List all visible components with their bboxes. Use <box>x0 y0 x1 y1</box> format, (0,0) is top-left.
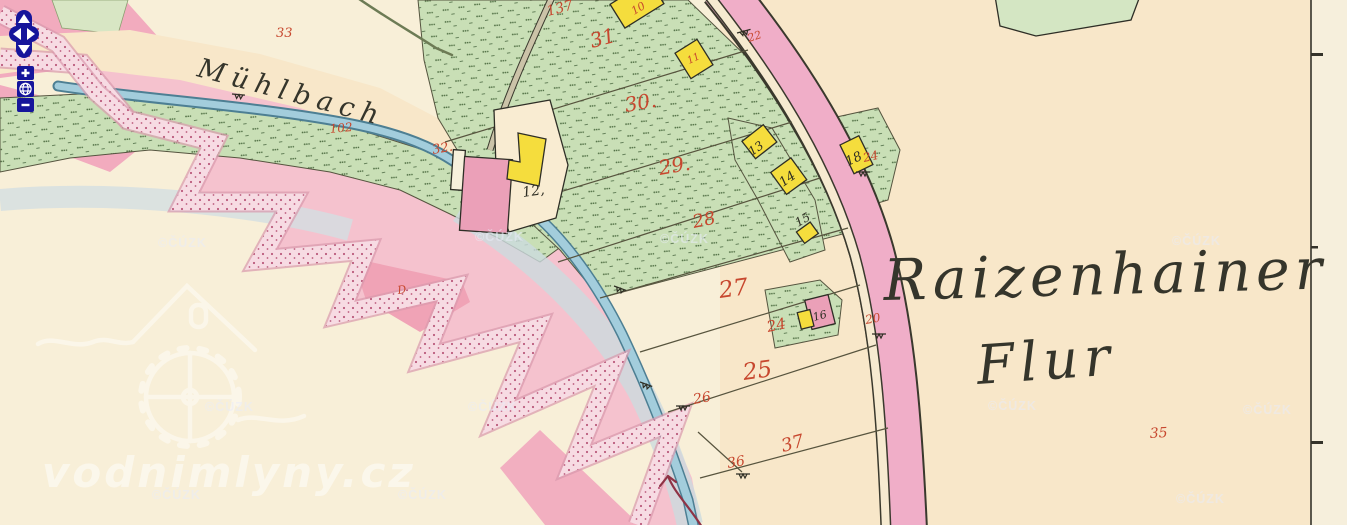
parcel-number-27: 27 <box>716 274 750 304</box>
parcel-number-33: 33 <box>276 26 293 41</box>
map-viewport[interactable]: Mühlbach Raizenhainer Flur 331373130.29.… <box>0 0 1347 525</box>
copyright-watermark: ©ČÚZK <box>1176 491 1225 506</box>
copyright-watermark: ©ČÚZK <box>660 231 709 246</box>
copyright-watermark: ©ČÚZK <box>475 229 524 244</box>
parcel-number-102: 102 <box>329 120 353 136</box>
watermark-site-text: vodnimlyny.cz <box>42 448 416 497</box>
copyright-watermark: ©ČÚZK <box>158 235 207 250</box>
territory-name-line1: Raizenhainer <box>882 236 1328 314</box>
building-12-masonry <box>459 156 512 233</box>
parcel-number-25: 25 <box>740 356 774 386</box>
copyright-watermark: ©ČÚZK <box>988 398 1037 413</box>
copyright-watermark: ©ČÚZK <box>205 399 254 414</box>
territory-name-line2: Flur <box>974 324 1118 397</box>
map-canvas: Mühlbach Raizenhainer Flur 331373130.29.… <box>0 0 1347 525</box>
copyright-watermark: ©ČÚZK <box>468 399 517 414</box>
copyright-watermark: ©ČÚZK <box>398 487 447 502</box>
map-navigation-control <box>4 6 52 118</box>
parcel-number-20: 20 <box>863 310 882 327</box>
parcel-number-36: 36 <box>726 453 746 472</box>
copyright-watermark: ©ČÚZK <box>1243 402 1292 417</box>
parcel-number-26: 26 <box>691 389 712 408</box>
parcel-number-35: 35 <box>1149 425 1168 442</box>
boundary-mark-d: D <box>396 283 408 297</box>
copyright-watermark: ©ČÚZK <box>1172 233 1221 248</box>
copyright-watermark: ©ČÚZK <box>152 487 201 502</box>
building-number-12: 12, <box>521 182 545 201</box>
